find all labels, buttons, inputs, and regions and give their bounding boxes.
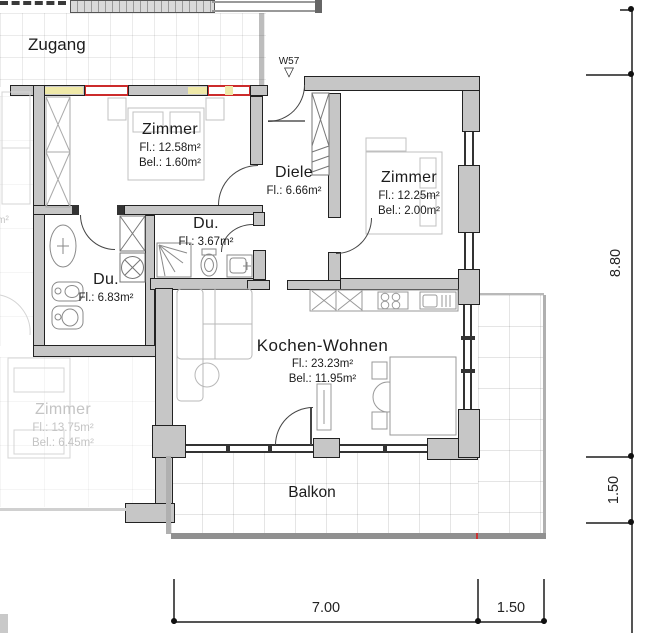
wall-kueche-north-b: [287, 280, 347, 290]
balkon-label: Balkon: [272, 483, 352, 503]
door-post: [72, 205, 79, 215]
wall-east-c: [458, 409, 480, 458]
toilet-du-gross: [52, 306, 83, 329]
du-gross-label: Du. Fl.: 6.83m²: [76, 270, 136, 306]
wall-east-b: [458, 269, 480, 305]
window-east-1: [464, 132, 474, 165]
dim-dot: [475, 618, 481, 624]
dim-line-right: [631, 8, 633, 633]
sink-du-gross: [50, 225, 76, 267]
window-mullion: [226, 444, 230, 453]
dim-dot: [628, 6, 634, 12]
dim-dot: [628, 519, 634, 525]
wall-kueche-north-a: [247, 280, 270, 290]
room-light-area: Bel.: 6.45m²: [22, 436, 104, 451]
wall-zimmer-ne-south: [340, 278, 462, 290]
neighbor-zimmer-label: Zimmer Fl.: 13.75m² Bel.: 6.45m²: [22, 400, 104, 451]
dim-line-bottom: [174, 621, 545, 623]
zimmer-ne-label: Zimmer Fl.: 12.25m² Bel.: 2.00m²: [372, 168, 446, 219]
diele-label: Diele Fl.: 6.66m²: [262, 163, 326, 199]
room-light-area: Bel.: 1.60m²: [118, 156, 222, 171]
room-area: Fl.: 6.83m²: [76, 291, 136, 306]
window-mullion: [268, 444, 272, 453]
balkon-side-top-line: [478, 293, 544, 295]
dim-value-balkon-width: 1.50: [488, 600, 534, 616]
neighbor-window-line: [0, 508, 126, 511]
dim-dot: [171, 618, 177, 624]
wall-east-pillar: [458, 165, 480, 233]
window-east-2: [464, 233, 474, 269]
balkon-side-right-line: [543, 295, 546, 533]
du-gross-door-arc: [80, 215, 115, 250]
wall-diele-west: [250, 96, 263, 165]
room-area: Fl.: 12.25m²: [372, 189, 446, 204]
dim-tick: [586, 456, 632, 458]
window-mullion: [461, 336, 475, 340]
window-north-1: [85, 85, 128, 96]
wall-top-right: [304, 76, 480, 91]
dim-dot: [628, 453, 634, 459]
balkon-door-arc: [275, 407, 313, 445]
dim-dot: [628, 71, 634, 77]
dim-value-width: 7.00: [300, 600, 352, 616]
zimmer-ne-door-arc: [336, 218, 372, 254]
room-area: Fl.: 23.23m²: [250, 357, 395, 372]
dashed-boundary-line: [0, 1, 66, 5]
tv-board: [317, 384, 331, 430]
balkon-door-window: [186, 444, 313, 453]
du-klein-label: Du. Fl.: 3.67m²: [176, 214, 236, 250]
dim-dot: [541, 618, 547, 624]
balkon-left-edge: [166, 456, 171, 534]
zimmer-nw-label: Zimmer Fl.: 12.58m² Bel.: 1.60m²: [118, 120, 222, 171]
sink-du-klein: [227, 255, 252, 277]
balkon-bottom-edge: [171, 533, 546, 539]
room-name: Zimmer: [118, 120, 222, 141]
wall-du-klein-east-a: [253, 212, 265, 226]
dim-tick: [586, 522, 632, 524]
toilet-du-klein: [201, 249, 217, 276]
room-name: Zimmer: [372, 168, 446, 189]
room-name: Du.: [76, 270, 136, 291]
window-sill: [42, 87, 83, 94]
balkon-side-tiles: [478, 295, 544, 533]
window-sill: [188, 87, 207, 94]
wall-zimmer-ne-west-a: [328, 93, 341, 218]
sofa-group: [177, 289, 252, 401]
room-light-area: Bel.: 11.95m²: [250, 372, 395, 387]
window-east-kueche: [463, 305, 472, 409]
upper-building-cap: [315, 0, 322, 13]
entry-door-arc: [268, 85, 305, 122]
balkon-red-tick: [476, 533, 478, 539]
wall-lr-pillar: [152, 425, 186, 458]
neighbor-wall-fragment: [0, 614, 8, 633]
wall-south-mid: [313, 438, 340, 458]
room-name: Kochen-Wohnen: [250, 335, 395, 357]
room-light-area: Bel.: 2.00m²: [372, 204, 446, 219]
wall-east-a: [462, 90, 480, 132]
room-name: Diele: [262, 163, 326, 184]
room-area: Fl.: 3.67m²: [176, 235, 236, 250]
room-area: Fl.: 13.75m²: [22, 421, 104, 436]
floor-plan: Zugang W57 ▽ Zimmer Fl.: 12.58m² Bel.: 1…: [0, 0, 650, 633]
wardrobe-zimmer-nw: [46, 97, 70, 207]
dim-value-balkon-depth: 1.50: [606, 465, 624, 515]
zugang-label: Zugang: [28, 34, 108, 56]
zimmer-nw-door-arc: [218, 165, 258, 205]
room-name: Zimmer: [22, 400, 104, 421]
entry-door-marker: ▽: [276, 64, 302, 81]
dim-tick: [586, 74, 632, 76]
upper-building-line: [212, 10, 316, 12]
upper-building-hatch: [70, 0, 215, 13]
wall-du-gross-south: [33, 345, 158, 357]
upper-building-line: [212, 1, 316, 3]
wall-west: [33, 85, 45, 357]
window-mullion: [383, 444, 387, 453]
wall-du-klein-east-b: [253, 250, 266, 280]
wall-top-c: [250, 85, 268, 96]
room-area: Fl.: 6.66m²: [262, 184, 326, 199]
dim-value-height: 8.80: [608, 238, 626, 288]
room-name: Du.: [176, 214, 236, 235]
room-area: Fl.: 12.58m²: [118, 141, 222, 156]
kochen-wohnen-label: Kochen-Wohnen Fl.: 23.23m² Bel.: 11.95m²: [250, 335, 395, 387]
window-sill: [225, 86, 233, 95]
coffee-table: [195, 363, 219, 387]
window-mullion: [461, 369, 475, 373]
kitchen-counter: [310, 290, 458, 311]
neighbor-text-fragment: m²: [0, 214, 11, 227]
